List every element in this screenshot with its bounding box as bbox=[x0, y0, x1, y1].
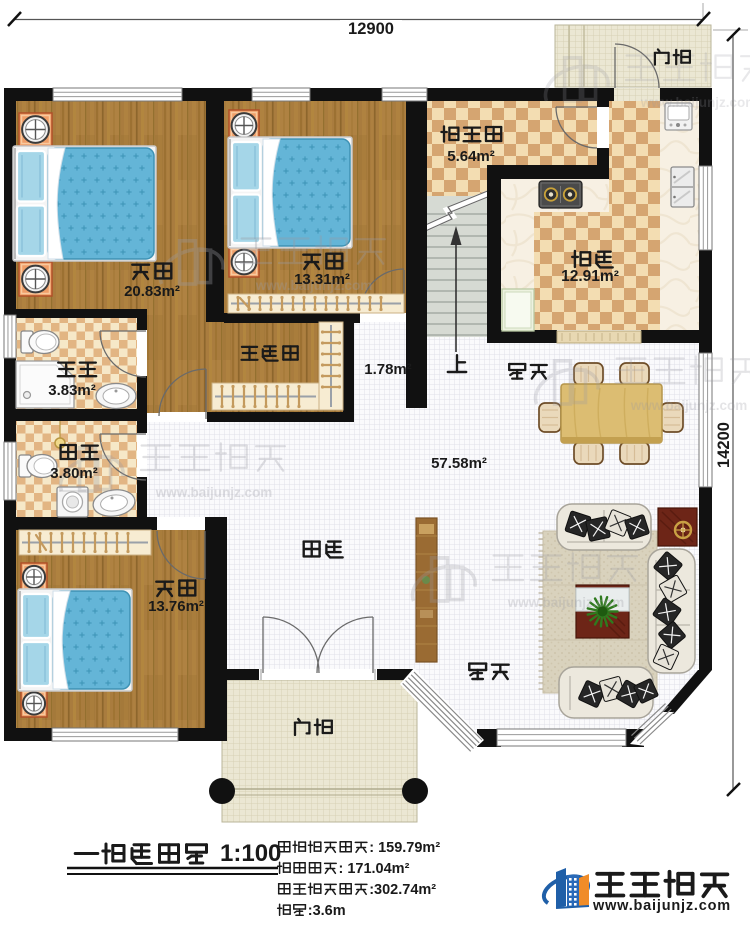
svg-text:3.80m²: 3.80m² bbox=[50, 465, 98, 482]
svg-text::302.74m²: :302.74m² bbox=[369, 882, 436, 898]
svg-text:3.83m²: 3.83m² bbox=[48, 382, 96, 399]
svg-text:www.baijunjz.com: www.baijunjz.com bbox=[155, 485, 273, 500]
svg-text::3.6m: :3.6m bbox=[308, 903, 346, 919]
svg-text:www.baijunjz.com: www.baijunjz.com bbox=[640, 95, 750, 110]
svg-text:www.baijunjz.com: www.baijunjz.com bbox=[507, 595, 625, 610]
svg-text:13.31m²: 13.31m² bbox=[294, 271, 350, 288]
svg-text:: 171.04m²: : 171.04m² bbox=[338, 861, 409, 877]
svg-text:1:100: 1:100 bbox=[220, 840, 281, 867]
svg-text:: 159.79m²: : 159.79m² bbox=[369, 840, 440, 856]
svg-text:12.91m²: 12.91m² bbox=[561, 268, 619, 285]
svg-text:20.83m²: 20.83m² bbox=[124, 283, 180, 300]
svg-text:5.64m²: 5.64m² bbox=[447, 148, 495, 165]
svg-text:57.58m²: 57.58m² bbox=[431, 455, 487, 472]
svg-text:13.76m²: 13.76m² bbox=[148, 598, 204, 615]
svg-text:1.78m²: 1.78m² bbox=[364, 361, 412, 378]
svg-text:www.baijunjz.com: www.baijunjz.com bbox=[630, 398, 748, 413]
svg-text:12900: 12900 bbox=[348, 20, 394, 38]
svg-text:www.baijunjz.com: www.baijunjz.com bbox=[592, 898, 731, 914]
svg-text:14200: 14200 bbox=[715, 422, 733, 468]
